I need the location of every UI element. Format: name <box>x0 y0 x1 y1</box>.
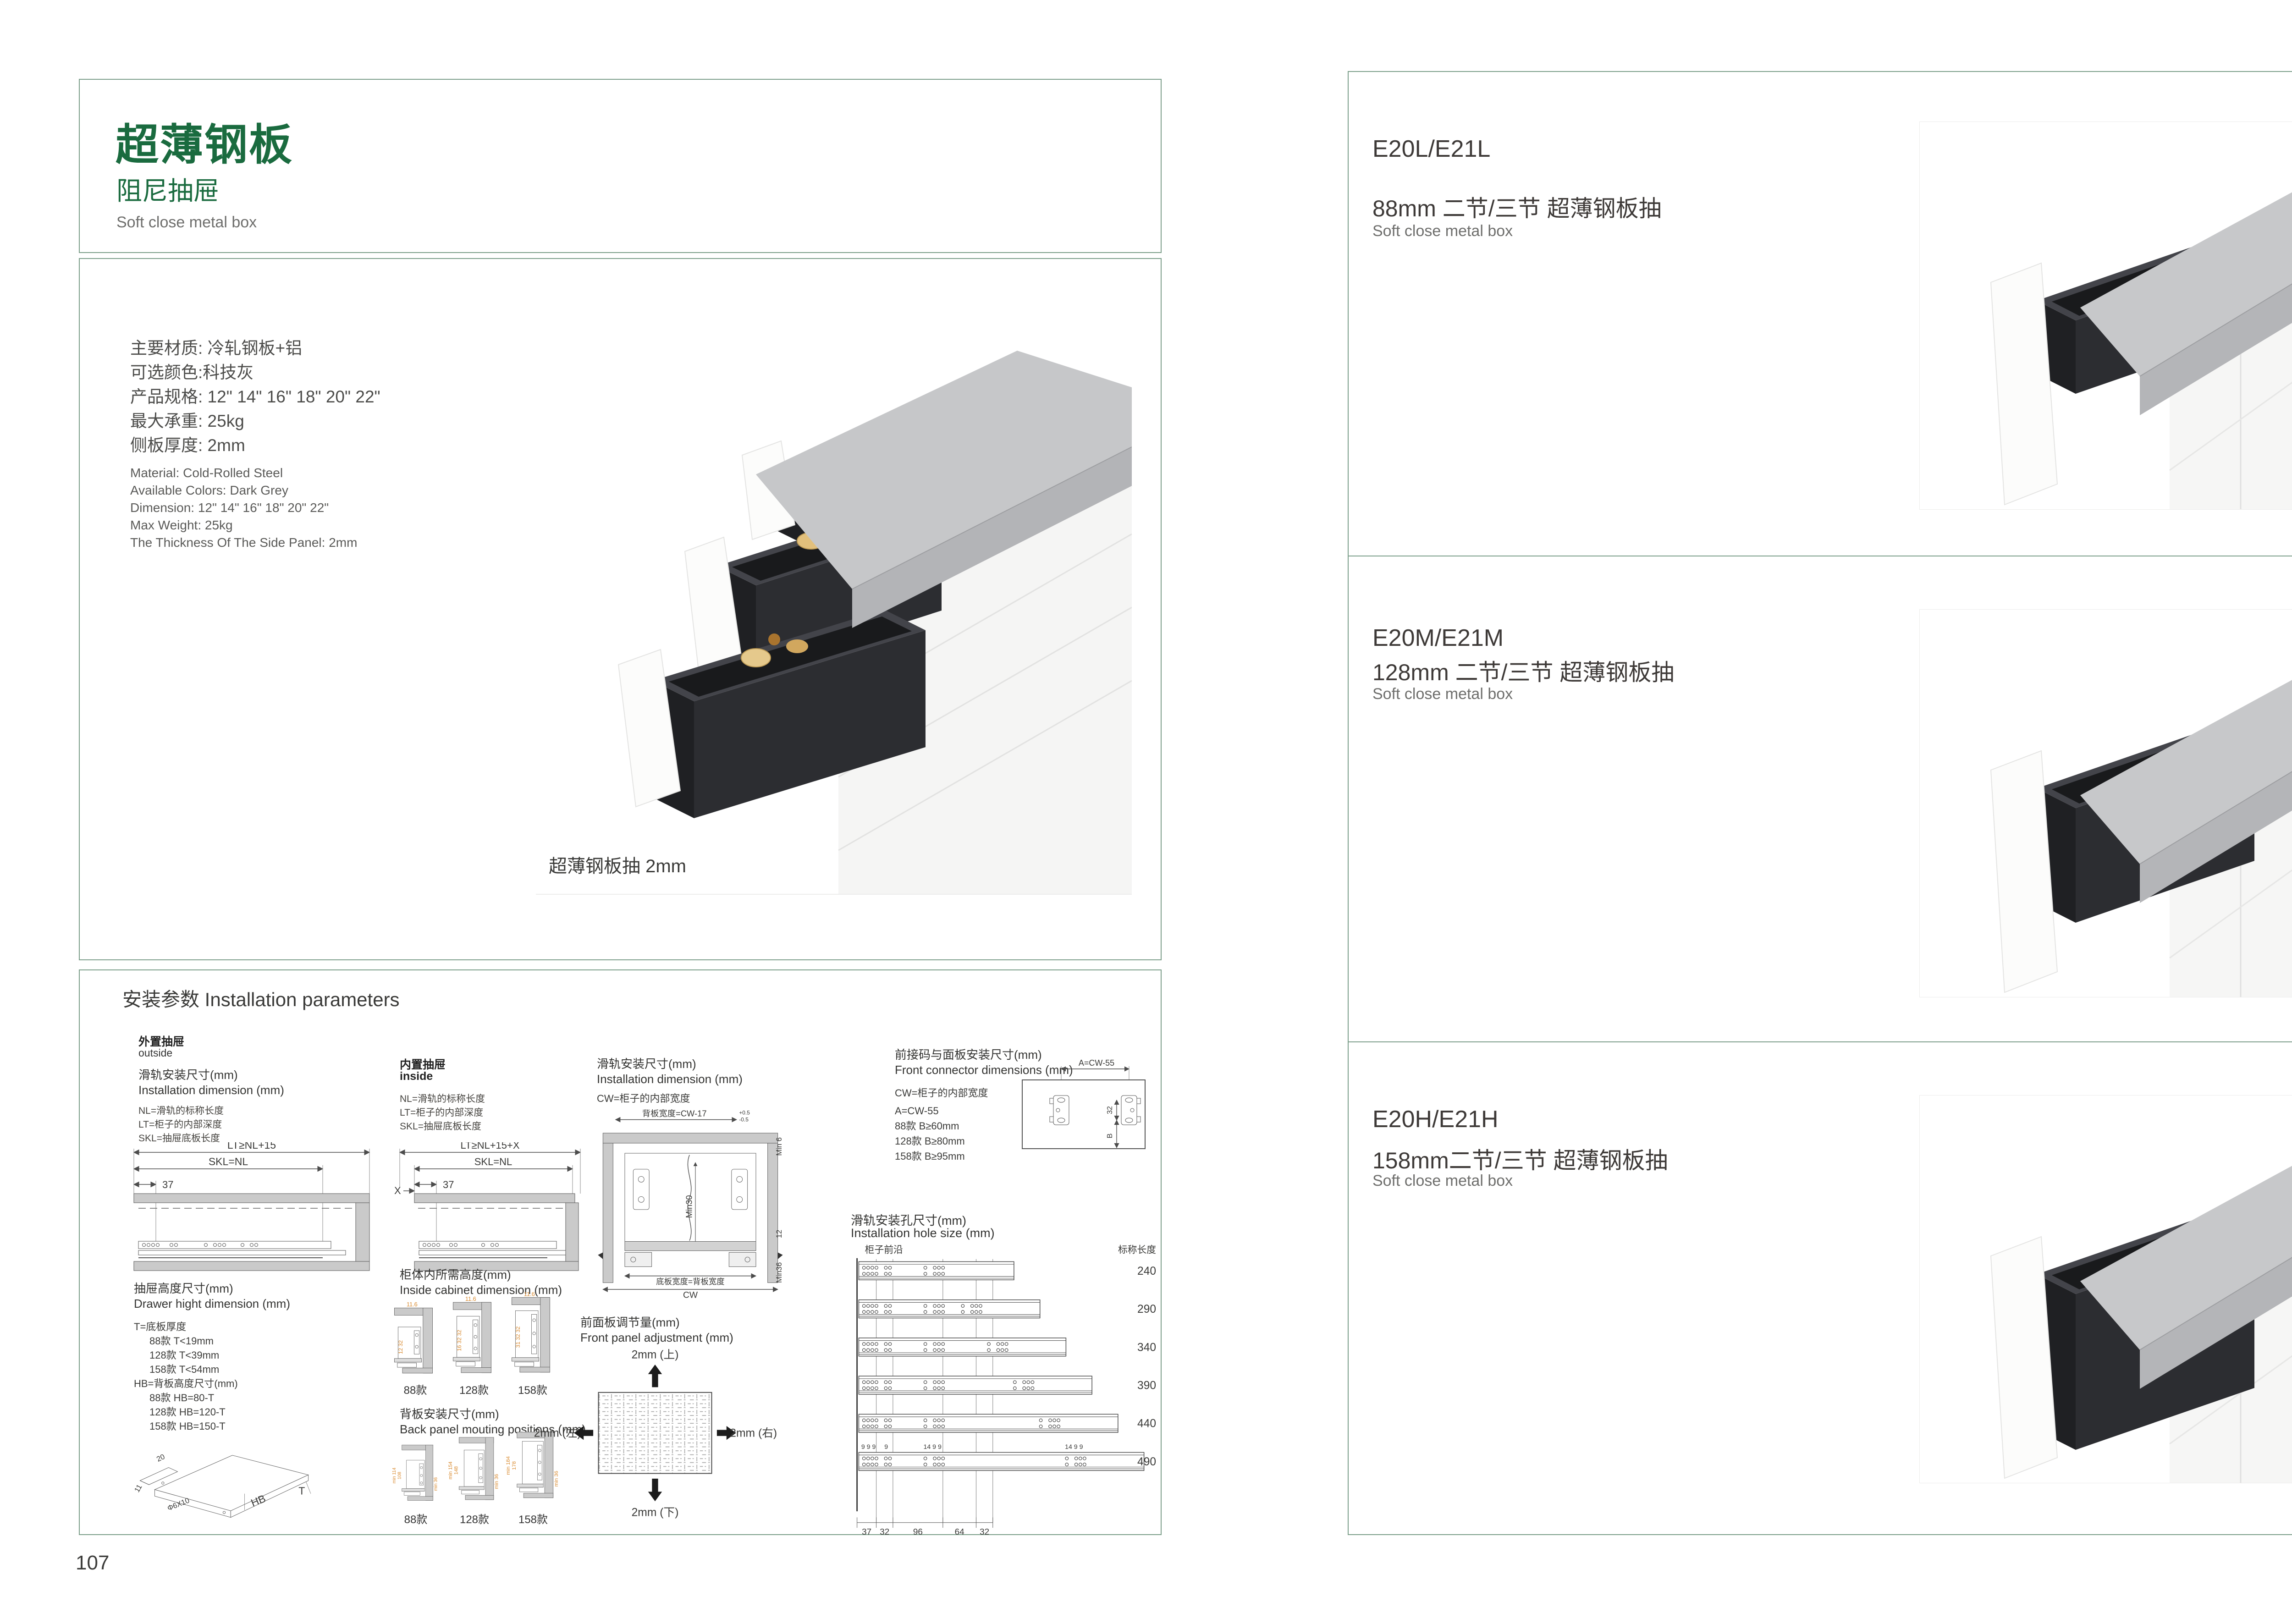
svg-text:14 9 9: 14 9 9 <box>1065 1443 1083 1451</box>
product-photo-e20h <box>1919 1095 2292 1483</box>
connector-diagram: A=CW-55 32 B <box>1015 1060 1152 1156</box>
height-title-cn: 抽屉高度尺寸(mm) <box>134 1281 233 1296</box>
svg-text:11.6: 11.6 <box>465 1297 476 1302</box>
page-number-left: 107 <box>76 1552 109 1574</box>
drawer-render-88 <box>1920 122 2292 509</box>
svg-text:14 9 9: 14 9 9 <box>923 1443 942 1451</box>
product-photo-e20l <box>1919 121 2292 510</box>
height-line: 128款 HB=120-T <box>134 1405 238 1419</box>
svg-text:64: 64 <box>955 1527 964 1536</box>
height-line: 88款 HB=80-T <box>134 1391 238 1405</box>
width-title-en: Installation dimension (mm) <box>597 1072 743 1087</box>
svg-text:Min30: Min30 <box>684 1195 694 1218</box>
svg-text:2mm (左): 2mm (左) <box>534 1427 581 1440</box>
legend-line: SKL=抽屉底板长度 <box>400 1120 485 1134</box>
adjust-title-en: Front panel adjustment (mm) <box>580 1330 733 1345</box>
height-lines: T=底板厚度 88款 T<19mm 128款 T<39mm 158款 T<54m… <box>134 1320 238 1433</box>
outside-legend: NL=滑轨的标称长度 LT=柜子的内部深度 SKL=抽屉底板长度 <box>138 1104 224 1145</box>
connector-line: A=CW-55 <box>895 1103 965 1118</box>
svg-text:标称长度: 标称长度 <box>1118 1245 1156 1255</box>
product-photo-e20m <box>1919 609 2292 997</box>
specs-cn: 主要材质: 冷轧钢板+铝 可选颜色:科技灰 产品规格: 12" 14" 16" … <box>130 336 380 457</box>
spec-line: Max Weight: 25kg <box>130 517 357 534</box>
svg-text:37: 37 <box>443 1179 454 1190</box>
spec-line: Dimension: 12" 14" 16" 18" 20" 22" <box>130 499 357 517</box>
hero-drawer-render <box>536 309 1132 894</box>
legend-line: LT=柜子的内部深度 <box>138 1118 224 1132</box>
product-size-en: Soft close metal box <box>1372 1172 1513 1190</box>
page-tagline: Soft close metal box <box>116 214 257 231</box>
svg-text:柜子前沿: 柜子前沿 <box>865 1245 903 1255</box>
product-size: 88mm 二节/三节 超薄钢板抽 <box>1372 190 1662 223</box>
svg-text:LT≥NL+15: LT≥NL+15 <box>227 1142 276 1151</box>
width-section-diagram: 背板宽度=CW-17 +0.5 -0.5 Min30 Min 6 12 <box>590 1108 791 1310</box>
cabinet-variant-128-label: 128款 <box>446 1381 501 1397</box>
spec-line: 产品规格: 12" 14" 16" 18" 20" 22" <box>130 385 380 409</box>
installation-hole-size-chart: 柜子前沿标称长度2402903403904404909 9 9914 9 914… <box>837 1242 1158 1536</box>
svg-text:9 9 9: 9 9 9 <box>861 1443 876 1451</box>
product-section-e20l: E20L/E21L 88mm 二节/三节 超薄钢板抽 Soft close me… <box>1349 72 2292 556</box>
svg-text:底板宽度=背板宽度: 底板宽度=背板宽度 <box>656 1277 724 1286</box>
backpanel-variant-88-diagram: min 114 108 min 36 <box>388 1442 444 1507</box>
svg-text:12: 12 <box>775 1230 783 1238</box>
svg-text:31 32 32: 31 32 32 <box>515 1326 521 1348</box>
svg-text:9: 9 <box>884 1443 888 1451</box>
outside-dim-title-cn: 滑轨安装尺寸(mm) <box>138 1068 238 1083</box>
svg-text:min 36: min 36 <box>433 1477 438 1491</box>
photo-caption: 超薄钢板抽 2mm <box>549 851 686 878</box>
svg-text:37: 37 <box>162 1179 173 1190</box>
svg-text:Min 6: Min 6 <box>775 1137 783 1156</box>
svg-text:32: 32 <box>980 1527 989 1536</box>
cabinet-variant-128-diagram: 11.6 16 32 32 <box>446 1297 501 1378</box>
outside-drawer-diagram: LT≥NL+15 SKL=NL 37 <box>126 1142 378 1284</box>
product-section-e20h: E20H/E21H 158mm二节/三节 超薄钢板抽 Soft close me… <box>1349 1042 2292 1533</box>
width-cw-note: CW=柜子的内部宽度 <box>597 1090 690 1105</box>
svg-text:min 114: min 114 <box>392 1467 397 1483</box>
height-line: 128款 T<39mm <box>134 1348 238 1362</box>
legend-line: NL=滑轨的标称长度 <box>138 1104 224 1118</box>
hero-product-photo: 超薄钢板抽 2mm <box>536 309 1132 895</box>
svg-text:148: 148 <box>454 1466 459 1475</box>
backpanel-variant-88-label: 88款 <box>388 1510 444 1526</box>
height-line: 158款 HB=150-T <box>134 1419 238 1433</box>
catalog-spread: 超薄钢板 阻尼抽屉 Soft close metal box 主要材质: 冷轧钢… <box>0 0 2292 1624</box>
backpanel-variant-128-label: 128款 <box>446 1510 502 1526</box>
spec-line: 主要材质: 冷轧钢板+铝 <box>130 336 380 360</box>
svg-text:2mm (右): 2mm (右) <box>730 1427 777 1440</box>
svg-text:490: 490 <box>1137 1456 1156 1468</box>
drawer-render-128 <box>1920 610 2292 997</box>
spec-line: 侧板厚度: 2mm <box>130 433 380 457</box>
svg-text:20: 20 <box>155 1453 166 1464</box>
cabinet-variant-88-diagram: 11.6 12 32 <box>388 1301 443 1378</box>
svg-text:T: T <box>298 1485 305 1497</box>
svg-text:2mm (下): 2mm (下) <box>632 1507 679 1519</box>
svg-text:37: 37 <box>862 1527 871 1536</box>
svg-text:SKL=NL: SKL=NL <box>209 1156 248 1167</box>
install-section-title: 安装参数 Installation parameters <box>122 984 400 1012</box>
cabinet-title-cn: 柜体内所需高度(mm) <box>400 1267 511 1283</box>
connector-lines: A=CW-55 88款 B≥60mm 128款 B≥80mm 158款 B≥95… <box>895 1103 965 1164</box>
left-title-box: 超薄钢板 阻尼抽屉 Soft close metal box <box>79 79 1162 253</box>
svg-text:11.6: 11.6 <box>524 1292 535 1297</box>
height-line: 158款 T<54mm <box>134 1362 238 1376</box>
svg-text:LT≥NL+15+X: LT≥NL+15+X <box>460 1142 519 1151</box>
svg-text:11.6: 11.6 <box>407 1301 418 1308</box>
installation-parameters-box: 安装参数 Installation parameters 外置抽屉 outsid… <box>79 969 1162 1535</box>
svg-text:12 32: 12 32 <box>397 1340 404 1354</box>
adjust-title-cn: 前面板调节量(mm) <box>580 1315 680 1330</box>
connector-line: 88款 B≥60mm <box>895 1118 965 1134</box>
outside-dim-title-en: Installation dimension (mm) <box>138 1083 284 1098</box>
svg-text:290: 290 <box>1137 1303 1156 1316</box>
svg-text:340: 340 <box>1137 1341 1156 1354</box>
product-size: 128mm 二节/三节 超薄钢板抽 <box>1372 654 1674 687</box>
spec-line: The Thickness Of The Side Panel: 2mm <box>130 534 357 551</box>
svg-text:440: 440 <box>1137 1418 1156 1430</box>
inside-drawer-diagram: LT≥NL+15+X SKL=NL 37 X <box>391 1142 589 1284</box>
svg-text:min 184: min 184 <box>506 1456 511 1475</box>
product-size-en: Soft close metal box <box>1372 685 1513 703</box>
width-title-cn: 滑轨安装尺寸(mm) <box>597 1057 696 1072</box>
svg-text:32: 32 <box>880 1527 889 1536</box>
page-subtitle: 阻尼抽屉 <box>116 171 219 208</box>
spec-line: Available Colors: Dark Grey <box>130 482 357 499</box>
svg-text:16 32 32: 16 32 32 <box>456 1330 463 1351</box>
spec-line: 可选颜色:科技灰 <box>130 360 380 385</box>
legend-line: NL=滑轨的标称长度 <box>400 1092 485 1106</box>
svg-text:240: 240 <box>1137 1265 1156 1277</box>
holes-title-en: Installation hole size (mm) <box>851 1226 995 1240</box>
connector-cw-note: CW=柜子的内部宽度 <box>895 1085 988 1100</box>
height-line: 88款 T<19mm <box>134 1334 238 1348</box>
height-line: HB=背板高度尺寸(mm) <box>134 1376 238 1391</box>
svg-text:Min36: Min36 <box>775 1262 783 1283</box>
product-model: E20H/E21H <box>1372 1106 1499 1133</box>
svg-text:min 36: min 36 <box>494 1474 500 1489</box>
svg-text:11: 11 <box>133 1483 144 1493</box>
height-line: T=底板厚度 <box>134 1320 238 1334</box>
svg-text:108: 108 <box>397 1471 402 1479</box>
svg-text:CW: CW <box>683 1290 698 1300</box>
drawer-render-158 <box>1920 1096 2292 1483</box>
svg-text:B: B <box>1106 1134 1114 1139</box>
left-product-box: 主要材质: 冷轧钢板+铝 可选颜色:科技灰 产品规格: 12" 14" 16" … <box>79 258 1162 960</box>
product-size: 158mm二节/三节 超薄钢板抽 <box>1372 1142 1668 1175</box>
svg-text:+0.5: +0.5 <box>739 1110 750 1116</box>
svg-text:178: 178 <box>512 1461 517 1470</box>
outside-tag-en: outside <box>138 1047 172 1059</box>
svg-text:A=CW-55: A=CW-55 <box>1079 1060 1114 1068</box>
svg-text:SKL=NL: SKL=NL <box>474 1156 512 1167</box>
connector-line: 158款 B≥95mm <box>895 1149 965 1164</box>
front-panel-adjustment-diagram: 2mm (上) 2mm (下) 2mm (左) 2mm (右) <box>522 1347 788 1521</box>
spec-line: Material: Cold-Rolled Steel <box>130 464 357 482</box>
product-model: E20M/E21M <box>1372 624 1504 652</box>
backpanel-variant-128-diagram: min 154 148 min 36 <box>446 1434 502 1507</box>
svg-text:min 154: min 154 <box>448 1461 453 1479</box>
legend-line: LT=柜子的内部深度 <box>400 1106 485 1120</box>
svg-text:390: 390 <box>1137 1380 1156 1392</box>
svg-text:2mm (上): 2mm (上) <box>632 1349 679 1361</box>
svg-text:背板宽度=CW-17: 背板宽度=CW-17 <box>642 1108 707 1118</box>
svg-text:-0.5: -0.5 <box>739 1116 749 1123</box>
page-title: 超薄钢板 <box>116 110 293 172</box>
right-products-box: E20L/E21L 88mm 二节/三节 超薄钢板抽 Soft close me… <box>1348 71 2292 1535</box>
bottom-panel-iso-diagram: 20 11 Φ6X10 HB T <box>123 1432 325 1526</box>
height-title-en: Drawer hight dimension (mm) <box>134 1296 290 1311</box>
connector-line: 128款 B≥80mm <box>895 1134 965 1149</box>
spec-line: 最大承重: 25kg <box>130 409 380 433</box>
inside-legend: NL=滑轨的标称长度 LT=柜子的内部深度 SKL=抽屉底板长度 <box>400 1092 485 1134</box>
svg-text:32: 32 <box>1106 1106 1114 1114</box>
product-model: E20L/E21L <box>1372 135 1490 163</box>
specs-en: Material: Cold-Rolled Steel Available Co… <box>130 464 357 551</box>
svg-text:X: X <box>394 1185 401 1196</box>
inside-tag-en: inside <box>400 1070 433 1083</box>
backpanel-title-cn: 背板安装尺寸(mm) <box>400 1407 499 1422</box>
svg-text:96: 96 <box>913 1527 923 1536</box>
product-size-en: Soft close metal box <box>1372 222 1513 240</box>
product-section-e20m: E20M/E21M 128mm 二节/三节 超薄钢板抽 Soft close m… <box>1349 556 2292 1041</box>
cabinet-variant-88-label: 88款 <box>388 1381 443 1397</box>
